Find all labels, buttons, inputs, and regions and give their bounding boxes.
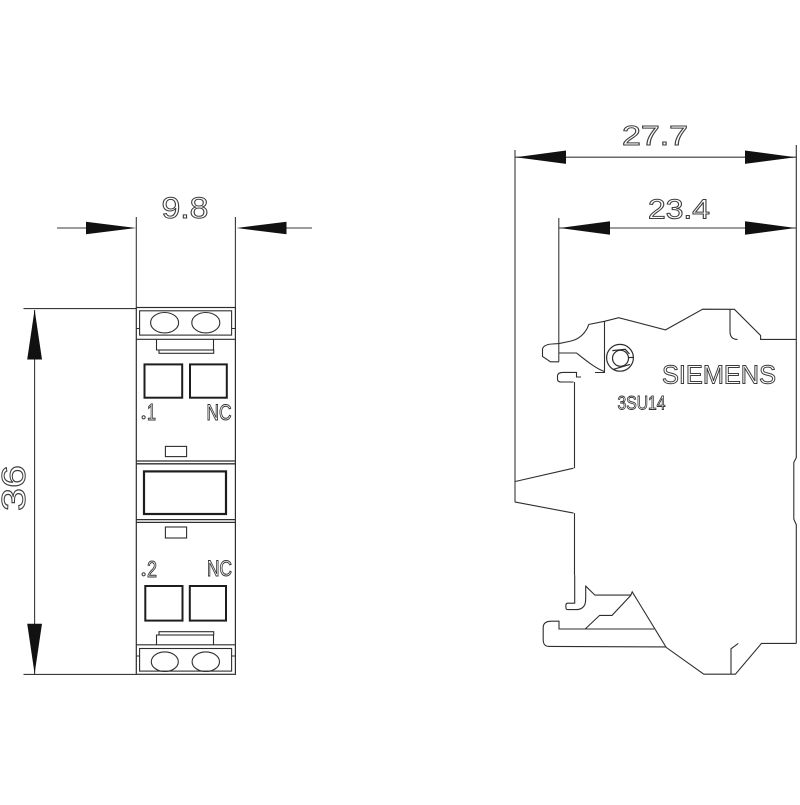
svg-text:NC: NC <box>207 556 232 581</box>
svg-text:23.4: 23.4 <box>648 194 710 225</box>
svg-text:36: 36 <box>0 465 32 511</box>
svg-text:NC: NC <box>207 400 232 425</box>
svg-text:1: 1 <box>147 399 156 425</box>
svg-text:SIEMENS: SIEMENS <box>662 360 776 390</box>
svg-text:2: 2 <box>147 556 157 582</box>
svg-text:3SU14: 3SU14 <box>618 394 666 415</box>
svg-text:9.8: 9.8 <box>162 192 209 225</box>
svg-text:27.7: 27.7 <box>622 120 688 151</box>
